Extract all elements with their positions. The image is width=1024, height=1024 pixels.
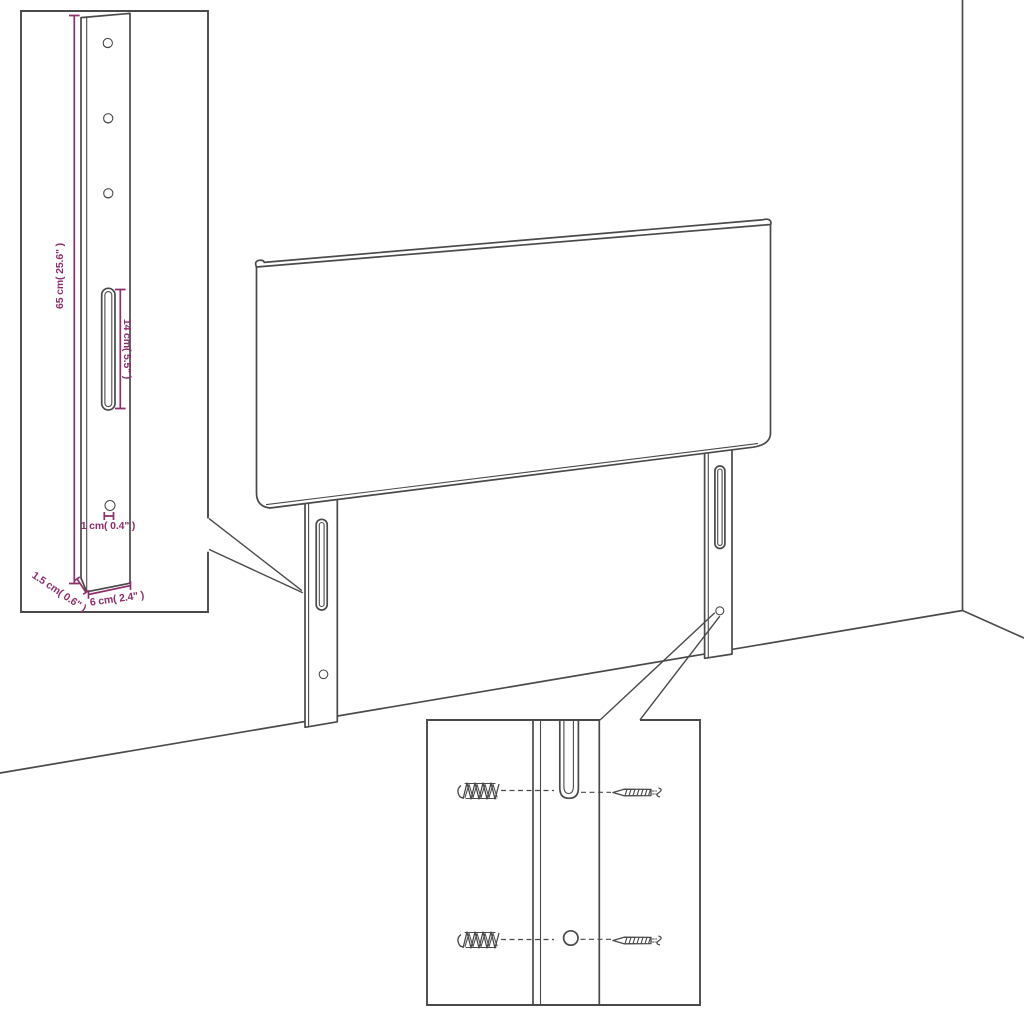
headboard-panel [256, 219, 771, 508]
hardware-callout-line-left [600, 613, 715, 720]
bracket-callout-line-lower [209, 549, 303, 592]
hardware-detail-inset [427, 720, 700, 1005]
dim-slot-length-label: 14 cm( 5.5" ) [121, 319, 133, 379]
bracket-callout-line-upper [209, 519, 302, 591]
line-art [0, 0, 1024, 1024]
right-mounting-leg [705, 430, 732, 658]
assembly-diagram: 65 cm( 25.6" ) 14 cm( 5.5" ) 1 cm( 0.4" … [0, 0, 1024, 1024]
hardware-callout-line-right [640, 616, 720, 720]
dim-height-label: 65 cm( 25.6" ) [54, 243, 66, 309]
dim-hole-diameter-label: 1 cm( 0.4" ) [81, 520, 136, 532]
callout-leader-lines [209, 519, 720, 720]
